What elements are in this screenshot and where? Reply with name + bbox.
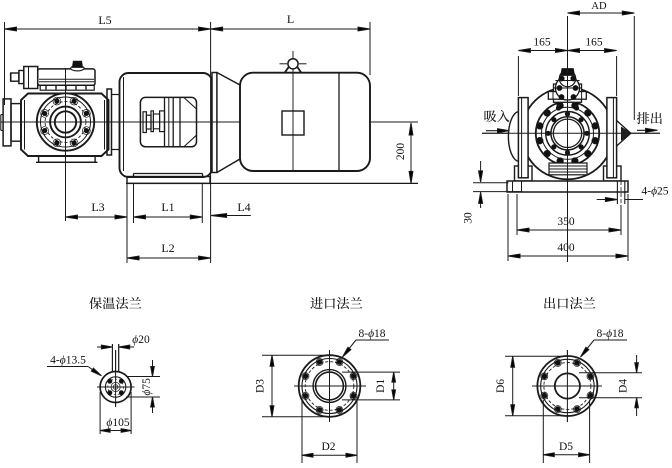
svg-text:ϕ75: ϕ75 — [141, 378, 153, 396]
svg-text:165: 165 — [585, 37, 603, 49]
svg-text:L: L — [287, 12, 294, 26]
svg-text:ϕ105: ϕ105 — [106, 417, 129, 429]
svg-text:400: 400 — [557, 242, 575, 254]
svg-text:D6: D6 — [495, 379, 507, 393]
svg-text:8-ϕ18: 8-ϕ18 — [596, 328, 623, 340]
svg-text:350: 350 — [557, 216, 575, 228]
svg-text:200: 200 — [395, 143, 407, 161]
svg-text:AD: AD — [591, 1, 607, 12]
svg-text:D5: D5 — [559, 441, 573, 453]
svg-text:D1: D1 — [375, 379, 387, 393]
svg-text:4-ϕ25: 4-ϕ25 — [641, 186, 668, 198]
svg-text:L5: L5 — [98, 13, 111, 27]
svg-text:30: 30 — [463, 212, 475, 224]
svg-text:L4: L4 — [237, 200, 250, 214]
svg-text:D2: D2 — [321, 441, 335, 453]
svg-text:L3: L3 — [91, 200, 104, 214]
svg-text:4-ϕ13.5: 4-ϕ13.5 — [50, 355, 86, 367]
svg-text:L2: L2 — [161, 241, 174, 255]
svg-text:ϕ20: ϕ20 — [132, 334, 150, 346]
svg-text:165: 165 — [533, 37, 551, 49]
svg-text:L1: L1 — [161, 200, 174, 214]
svg-text:D4: D4 — [618, 379, 630, 393]
svg-text:8-ϕ18: 8-ϕ18 — [358, 328, 385, 340]
svg-text:D3: D3 — [255, 379, 267, 393]
